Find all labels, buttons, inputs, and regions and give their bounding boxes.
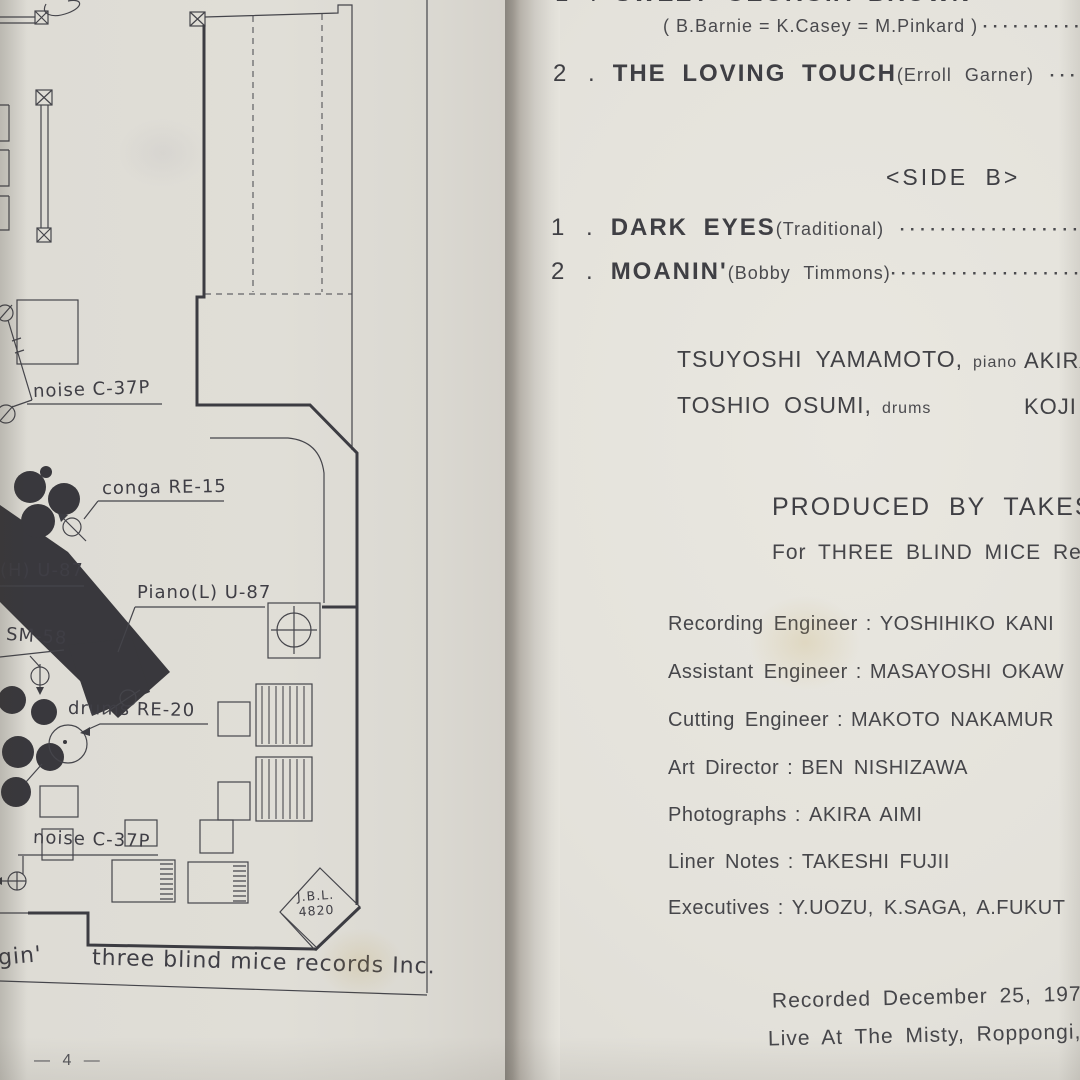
side-a-track2-row: 2 .THE LOVING TOUCH(Erroll Garner) ·····… [553, 60, 1080, 88]
credit-name: Y.UOZU, K.SAGA, A.FUKUT [792, 897, 1066, 919]
credit-name: YOSHIHIKO KANI [880, 613, 1054, 635]
credit-separator: : [848, 661, 870, 683]
credit-role: Cutting Engineer [668, 709, 829, 731]
credit-separator: : [780, 851, 802, 873]
handwriting-squiggle [44, 0, 79, 15]
produced-for-line: For THREE BLIND MICE Rec [772, 541, 1080, 565]
produced-by-line: PRODUCED BY TAKESHI [772, 493, 1080, 522]
label-piano-h-u87: (H) U-87 [0, 560, 84, 581]
credit-row: Art Director:BEN NISHIZAWA [668, 757, 968, 780]
composer: (Traditional) [776, 219, 884, 239]
side-b-header: <SIDE B> [886, 164, 1020, 191]
leader-dots: ·············· [983, 17, 1080, 36]
right-page: 1 .SWEET GEORGIA BROWN ( B.Barnie = K.Ca… [560, 0, 1080, 1080]
caption-fragment: gin' [0, 942, 43, 971]
photo-of-booklet-spread: { "left_page": { "diagram_labels": { "no… [0, 0, 1080, 1080]
credit-separator: : [829, 709, 851, 731]
label-jbl-4820: J.B.L. 4820 [282, 886, 350, 921]
credit-role: Photographs [668, 804, 787, 826]
credit-role: Recording Engineer [668, 613, 858, 635]
floor-plan-drawing [0, 0, 440, 1010]
composer: ( B.Barnie = K.Casey = M.Pinkard ) [663, 16, 978, 36]
composer: (Bobby Timmons) [728, 263, 891, 283]
track-number: 2 . [553, 60, 599, 88]
credit-row: Assistant Engineer:MASAYOSHI OKAW [668, 661, 1064, 684]
credit-row: Liner Notes:TAKESHI FUJII [668, 851, 950, 874]
musician-name: TOSHIO OSUMI, [677, 392, 872, 418]
leader-dots: ···························· [900, 220, 1080, 239]
label-noise-c37p-bottom: noise C-37P [33, 827, 151, 852]
credit-role: Assistant Engineer [668, 661, 848, 683]
personnel-fragment: AKIRA [1024, 348, 1080, 374]
credit-name: BEN NISHIZAWA [801, 757, 968, 779]
side-a-track1-row: 1 .SWEET GEORGIA BROWN [555, 0, 971, 8]
track-title: DARK EYES [611, 214, 776, 241]
credit-separator: : [787, 804, 809, 826]
credit-role: Executives [668, 897, 770, 919]
track-number: 1 . [555, 0, 601, 8]
grand-piano-shape [0, 505, 170, 718]
track-title: MOANIN' [611, 258, 728, 285]
credit-name: AKIRA AIMI [809, 804, 922, 826]
musician-instrument: piano [973, 354, 1017, 371]
credit-row: Executives:Y.UOZU, K.SAGA, A.FUKUT [668, 897, 1065, 920]
recorded-venue-line: Live At The Misty, Roppongi, [768, 1020, 1080, 1051]
credit-separator: : [779, 757, 801, 779]
credit-name: MASAYOSHI OKAW [870, 661, 1064, 683]
label-noise-c37p-top: noise C-37P [33, 377, 151, 402]
composer: (Erroll Garner) [897, 65, 1034, 85]
personnel-row: TSUYOSHI YAMAMOTO,piano [677, 346, 1017, 373]
recorded-date-line: Recorded December 25, 1974 [772, 982, 1080, 1013]
page-number: — 4 — [34, 1052, 104, 1070]
track-title: THE LOVING TOUCH [613, 60, 897, 87]
credit-name: TAKESHI FUJII [802, 851, 950, 873]
personnel-row: TOSHIO OSUMI,drums [677, 392, 931, 419]
leader-dots: ······························ [891, 264, 1080, 283]
label-drums-re20: drums RE-20 [68, 698, 196, 721]
track-number: 2 . [551, 258, 597, 286]
leader-dots: ············ [1050, 66, 1080, 85]
side-b-track2-row: 2 .MOANIN'(Bobby Timmons)···············… [551, 258, 1080, 286]
credit-separator: : [770, 897, 792, 919]
musician-instrument: drums [882, 400, 931, 417]
label-sm58: SM-58 [5, 624, 68, 649]
track-number: 1 . [551, 214, 597, 242]
label-piano-l-u87: Piano(L) U-87 [137, 582, 271, 603]
personnel-fragment: KOJI [1024, 394, 1077, 420]
book-gutter-shadow [505, 0, 560, 1080]
credit-row: Cutting Engineer:MAKOTO NAKAMUR [668, 709, 1054, 732]
credit-name: MAKOTO NAKAMUR [851, 709, 1054, 731]
credit-row: Photographs:AKIRA AIMI [668, 804, 922, 827]
side-a-track1-composer-row: ( B.Barnie = K.Casey = M.Pinkard ) ·····… [663, 16, 1080, 37]
side-b-track1-row: 1 .DARK EYES(Traditional) ··············… [551, 214, 1080, 242]
credit-role: Art Director [668, 757, 779, 779]
label-conga-re15: conga RE-15 [102, 476, 227, 499]
track-title: SWEET GEORGIA BROWN [615, 0, 971, 7]
credit-row: Recording Engineer:YOSHIHIKO KANI [668, 613, 1054, 636]
left-page: noise C-37P conga RE-15 (H) U-87 Piano(L… [0, 0, 505, 1080]
credit-role: Liner Notes [668, 851, 780, 873]
credit-separator: : [858, 613, 880, 635]
musician-name: TSUYOSHI YAMAMOTO, [677, 346, 963, 372]
conga-drums-shape [14, 466, 80, 538]
